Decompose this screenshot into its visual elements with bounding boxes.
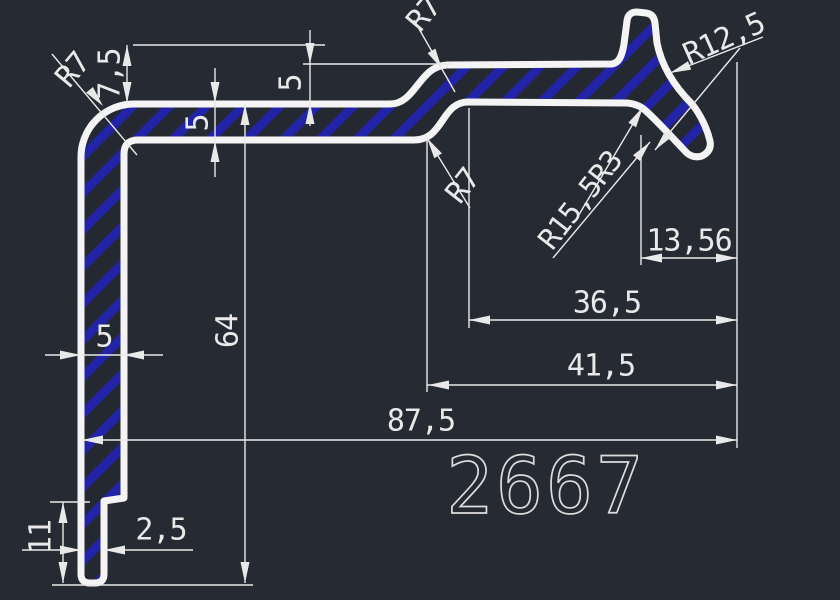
arrowhead-icon [59, 562, 68, 583]
arrowhead-icon [428, 381, 449, 390]
dim-label-5-rise: 5 [274, 74, 309, 91]
arrowhead-icon [241, 562, 250, 583]
dim-label-13-56: 13,56 [646, 224, 731, 259]
arrowhead-icon [716, 436, 737, 445]
dim-label-41-5: 41,5 [567, 349, 635, 384]
cad-drawing-canvas[interactable]: R7 7,5 5 5 R7 R7 R15,5R3 R12,5 13,56 36,… [0, 0, 840, 600]
arrowhead-icon [211, 141, 220, 162]
arrowhead-icon [716, 381, 737, 390]
dim-label-2-5: 2,5 [135, 513, 186, 548]
dim-label-11: 11 [24, 520, 59, 554]
dim-label-5-leg: 5 [95, 320, 112, 355]
dim-label-5-wall: 5 [181, 114, 216, 131]
arrowhead-icon [306, 43, 315, 64]
dim-label-7-5: 7,5 [93, 48, 128, 99]
arrowhead-icon [716, 316, 737, 325]
dim-label-64: 64 [211, 314, 246, 348]
part-number: 2667 [446, 442, 646, 532]
dim-label-36-5: 36,5 [573, 286, 641, 321]
arrowhead-icon [211, 82, 220, 103]
radius-label: R7 [400, 0, 449, 38]
arrowhead-icon [469, 316, 490, 325]
radius-label: R7 [49, 46, 98, 95]
cad-viewport: R7 7,5 5 5 R7 R7 R15,5R3 R12,5 13,56 36,… [0, 0, 840, 600]
arrowhead-icon [59, 502, 68, 523]
radius-label: R12,5 [678, 6, 770, 73]
dim-label-87-5: 87,5 [387, 404, 455, 439]
radius-label: R15,5R3 [531, 144, 629, 256]
